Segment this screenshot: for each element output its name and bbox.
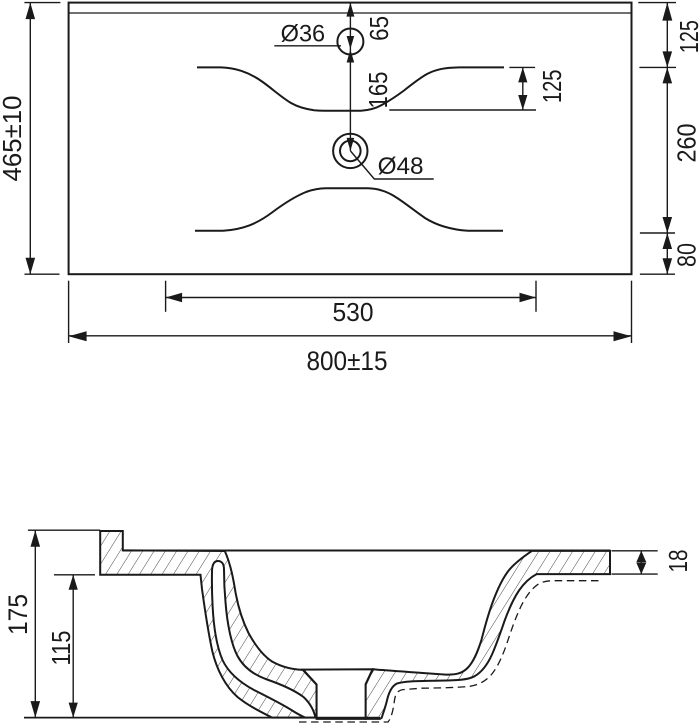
svg-text:Ø48: Ø48 xyxy=(378,153,424,180)
svg-text:125: 125 xyxy=(537,70,567,104)
svg-text:465±10: 465±10 xyxy=(0,96,27,182)
svg-text:175: 175 xyxy=(3,594,33,635)
svg-text:800±15: 800±15 xyxy=(307,346,388,376)
svg-text:80: 80 xyxy=(672,243,700,267)
svg-text:125: 125 xyxy=(674,20,700,53)
svg-text:65: 65 xyxy=(364,16,394,41)
svg-text:18: 18 xyxy=(663,550,693,573)
svg-text:Ø36: Ø36 xyxy=(281,21,326,48)
svg-text:530: 530 xyxy=(333,297,374,327)
svg-text:115: 115 xyxy=(46,631,76,666)
svg-text:165: 165 xyxy=(363,72,393,109)
svg-text:260: 260 xyxy=(672,124,700,163)
